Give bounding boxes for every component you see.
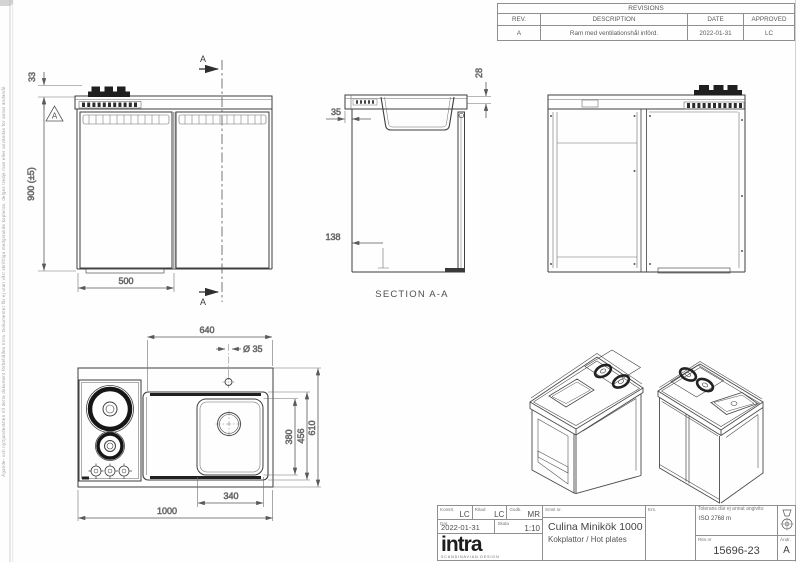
margin-fine-print: Ägande- och nyttjanderätten till detta d… bbox=[0, 0, 8, 562]
skala-value: 1:10 bbox=[524, 524, 540, 533]
revision-flag-letter: A bbox=[52, 112, 58, 121]
konstr-value: LC bbox=[459, 510, 469, 519]
revisions-title: REVISIONS bbox=[498, 4, 794, 14]
intra-logo: intra bbox=[441, 535, 542, 555]
dim-456: 456 bbox=[296, 428, 306, 443]
rev-value: A bbox=[778, 542, 795, 556]
drawing-title: Culina Minikök 1000 bbox=[543, 518, 645, 533]
dat-value: 2022-01-31 bbox=[441, 523, 480, 532]
rear-view bbox=[548, 85, 745, 273]
front-view bbox=[75, 87, 272, 274]
smst-label: Smst nr. bbox=[543, 506, 645, 512]
revision-rev: A bbox=[498, 26, 541, 40]
revision-date: 2022-01-31 bbox=[688, 26, 744, 40]
revision-approved: LC bbox=[744, 26, 794, 40]
revision-flag: A bbox=[46, 106, 63, 121]
dim-340: 340 bbox=[223, 491, 238, 501]
plan-view-dimensions: 640 Ø 35 340 1000 380 456 610 bbox=[78, 325, 321, 521]
dim-500: 500 bbox=[118, 276, 133, 286]
margin-fine-print-text: Ägande- och nyttjanderätten till detta d… bbox=[1, 85, 6, 477]
title-block-approvals: Konstr.LC RitadLC Godk.MR Dat.2022-01-31… bbox=[438, 506, 543, 560]
title-block: Konstr.LC RitadLC Godk.MR Dat.2022-01-31… bbox=[437, 505, 796, 561]
hob-knobs bbox=[89, 464, 133, 480]
drawing-sheet: 33 900 (±5) 500 A A A bbox=[0, 0, 800, 562]
dim-28: 28 bbox=[474, 68, 484, 78]
worktop-hole bbox=[223, 376, 235, 388]
dim-640: 640 bbox=[199, 325, 214, 335]
title-block-ers: Ers. bbox=[646, 506, 696, 560]
burner-small bbox=[96, 432, 125, 461]
plan-view bbox=[78, 344, 273, 487]
revisions-col-date: DATE bbox=[688, 14, 744, 26]
revisions-header-row: REV. DESCRIPTION DATE APPROVED bbox=[498, 14, 794, 26]
drawing-canvas: 33 900 (±5) 500 A A A bbox=[0, 0, 800, 562]
section-view-dimensions: 28 35 138 bbox=[325, 68, 491, 243]
ritad-value: LC bbox=[494, 510, 504, 519]
dim-610: 610 bbox=[307, 420, 317, 435]
intra-logo-tagline: SCANDINAVIAN DESIGN bbox=[441, 555, 542, 559]
dim-138: 138 bbox=[325, 232, 340, 242]
drawing-no-value: 15696-23 bbox=[696, 542, 777, 557]
logo-cell: intra SCANDINAVIAN DESIGN bbox=[438, 534, 542, 562]
revisions-table: REVISIONS REV. DESCRIPTION DATE APPROVED… bbox=[497, 3, 795, 41]
dim-33: 33 bbox=[27, 72, 37, 82]
iso-view-front bbox=[658, 362, 763, 504]
revisions-col-description: DESCRIPTION bbox=[541, 14, 688, 26]
projection-symbol-icon bbox=[780, 508, 794, 534]
dim-hole: Ø 35 bbox=[243, 344, 263, 354]
dim-380: 380 bbox=[284, 429, 294, 444]
hob-silhouette-rear bbox=[694, 85, 742, 96]
dim-35: 35 bbox=[331, 107, 341, 117]
title-block-main: Smst nr. Culina Minikök 1000 Kokplattor … bbox=[543, 506, 646, 560]
title-block-rev: Ändr. A bbox=[778, 506, 795, 560]
title-block-tolerance: Tolerans där ej annat angivits: ISO 2768… bbox=[696, 506, 778, 560]
drawing-subtitle: Kokplattor / Hot plates bbox=[543, 533, 645, 544]
section-view bbox=[345, 95, 467, 273]
revisions-col-approved: APPROVED bbox=[744, 14, 794, 26]
section-label: SECTION A-A bbox=[375, 289, 448, 300]
revisions-row: A Ram med ventilationshål införd. 2022-0… bbox=[498, 26, 794, 40]
dim-900: 900 (±5) bbox=[26, 167, 36, 200]
section-mark-top: A bbox=[200, 54, 206, 64]
burner-large bbox=[87, 386, 134, 433]
section-mark-bottom: A bbox=[200, 297, 206, 307]
hob-silhouette-front bbox=[88, 87, 130, 98]
ers-label: Ers. bbox=[646, 506, 695, 512]
revisions-col-rev: REV. bbox=[498, 14, 541, 26]
dim-1000: 1000 bbox=[157, 506, 177, 516]
godk-value: MR bbox=[528, 510, 540, 519]
revision-description: Ram med ventilationshål införd. bbox=[541, 26, 688, 40]
tolerance-value: ISO 2768 m bbox=[696, 512, 777, 522]
iso-view-rear bbox=[530, 350, 643, 494]
sink-drain bbox=[216, 411, 243, 438]
